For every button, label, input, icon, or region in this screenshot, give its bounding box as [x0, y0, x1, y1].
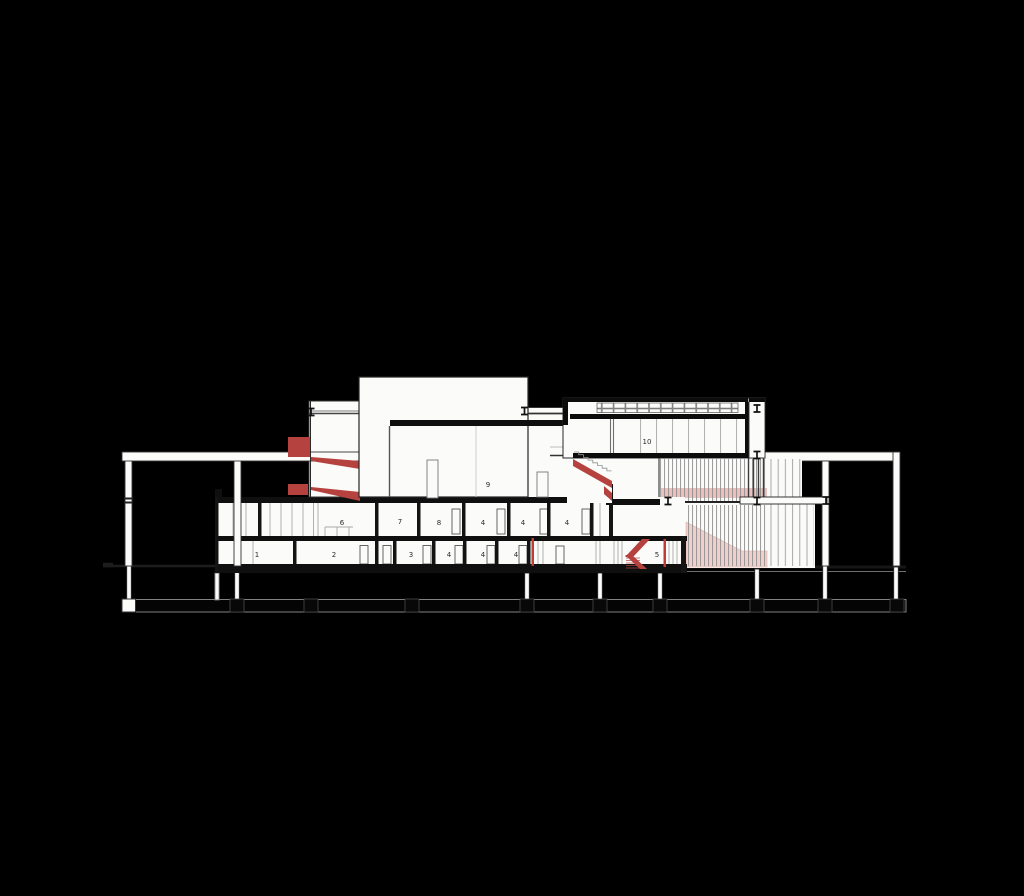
- hall-door-1: [427, 460, 438, 498]
- room-label-4d: 4: [481, 519, 486, 527]
- clerestory-band: [597, 403, 738, 413]
- hall-ceiling: [390, 420, 572, 426]
- upper-gallery: [563, 398, 765, 458]
- canvas: 1 2 3 4 4 4 5 6 7 8 4 4 4 9 10: [0, 0, 1024, 896]
- room-label-3: 3: [409, 551, 413, 559]
- slab-bottom: [215, 564, 687, 573]
- room-label-7: 7: [398, 518, 402, 526]
- low-beam-right: [740, 497, 827, 504]
- room-label-8: 8: [437, 519, 441, 527]
- section-drawing: 1 2 3 4 4 4 5 6 7 8 4 4 4 9 10: [0, 0, 1024, 896]
- gallery-floor: [573, 453, 765, 458]
- room-label-4c: 4: [514, 551, 519, 559]
- parapet-stub: [215, 489, 222, 498]
- left-tower: [309, 401, 360, 497]
- room-label-9: 9: [486, 481, 490, 489]
- frame-column-mid: [234, 452, 241, 566]
- room-label-10: 10: [643, 438, 652, 446]
- slab-mid: [215, 536, 687, 541]
- frame-column-left: [125, 452, 132, 566]
- hall-door-2: [537, 472, 548, 497]
- room-label-2: 2: [332, 551, 336, 559]
- pile-cap-white: [122, 599, 136, 612]
- room-label-4a: 4: [447, 551, 452, 559]
- slab-top-right: [606, 499, 660, 505]
- room-label-4e: 4: [521, 519, 526, 527]
- red-wall-1: [532, 538, 535, 566]
- slab-top-left: [215, 497, 590, 503]
- red-wall-2: [664, 539, 667, 567]
- hall-volume: [359, 377, 528, 497]
- room-label-1: 1: [255, 551, 259, 559]
- room-label-5: 5: [655, 551, 659, 559]
- room-label-4b: 4: [481, 551, 486, 559]
- room-label-4f: 4: [565, 519, 570, 527]
- room-label-6: 6: [340, 519, 345, 527]
